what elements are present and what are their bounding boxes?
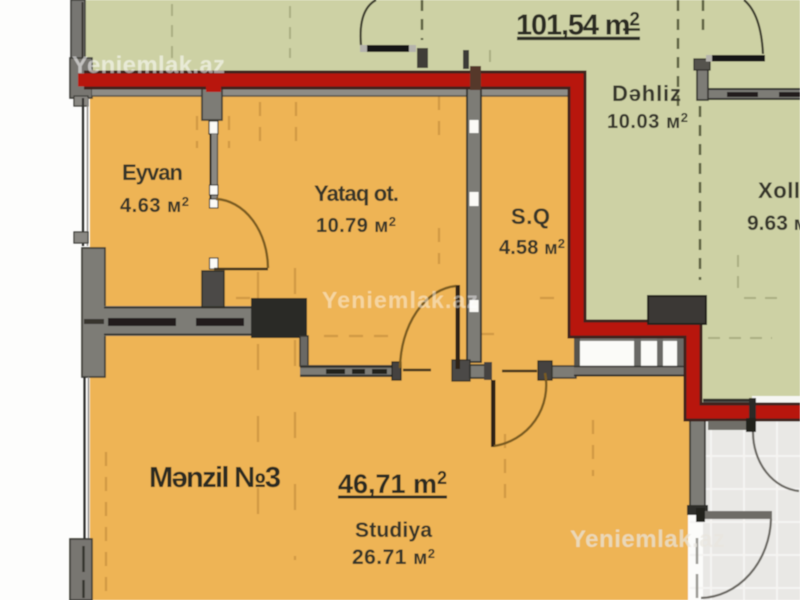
svg-text:10.03 м2: 10.03 м2 xyxy=(607,110,688,133)
svg-text:4.63 м2: 4.63 м2 xyxy=(120,194,189,217)
svg-text:10.79 м2: 10.79 м2 xyxy=(316,214,396,237)
svg-text:Studiya: Studiya xyxy=(355,519,432,542)
svg-text:S.Q: S.Q xyxy=(511,204,550,229)
svg-text:4.58 м2: 4.58 м2 xyxy=(499,236,565,259)
svg-text:Eyvan: Eyvan xyxy=(122,160,183,185)
svg-text:26.71 м2: 26.71 м2 xyxy=(352,546,435,569)
svg-text:9.63 м2: 9.63 м2 xyxy=(747,212,800,235)
svg-text:46,71 m2: 46,71 m2 xyxy=(338,468,447,499)
svg-text:Yeniemlak.az: Yeniemlak.az xyxy=(570,526,725,553)
svg-text:Yeniemlak.az: Yeniemlak.az xyxy=(72,52,225,79)
svg-text:Yeniemlak.az: Yeniemlak.az xyxy=(322,287,478,313)
svg-text:Mənzil №3: Mənzil №3 xyxy=(149,462,281,494)
svg-text:Yataq ot.: Yataq ot. xyxy=(314,181,399,206)
svg-text:Dəhliz: Dəhliz xyxy=(612,81,681,106)
svg-text:Xoll: Xoll xyxy=(758,178,800,203)
